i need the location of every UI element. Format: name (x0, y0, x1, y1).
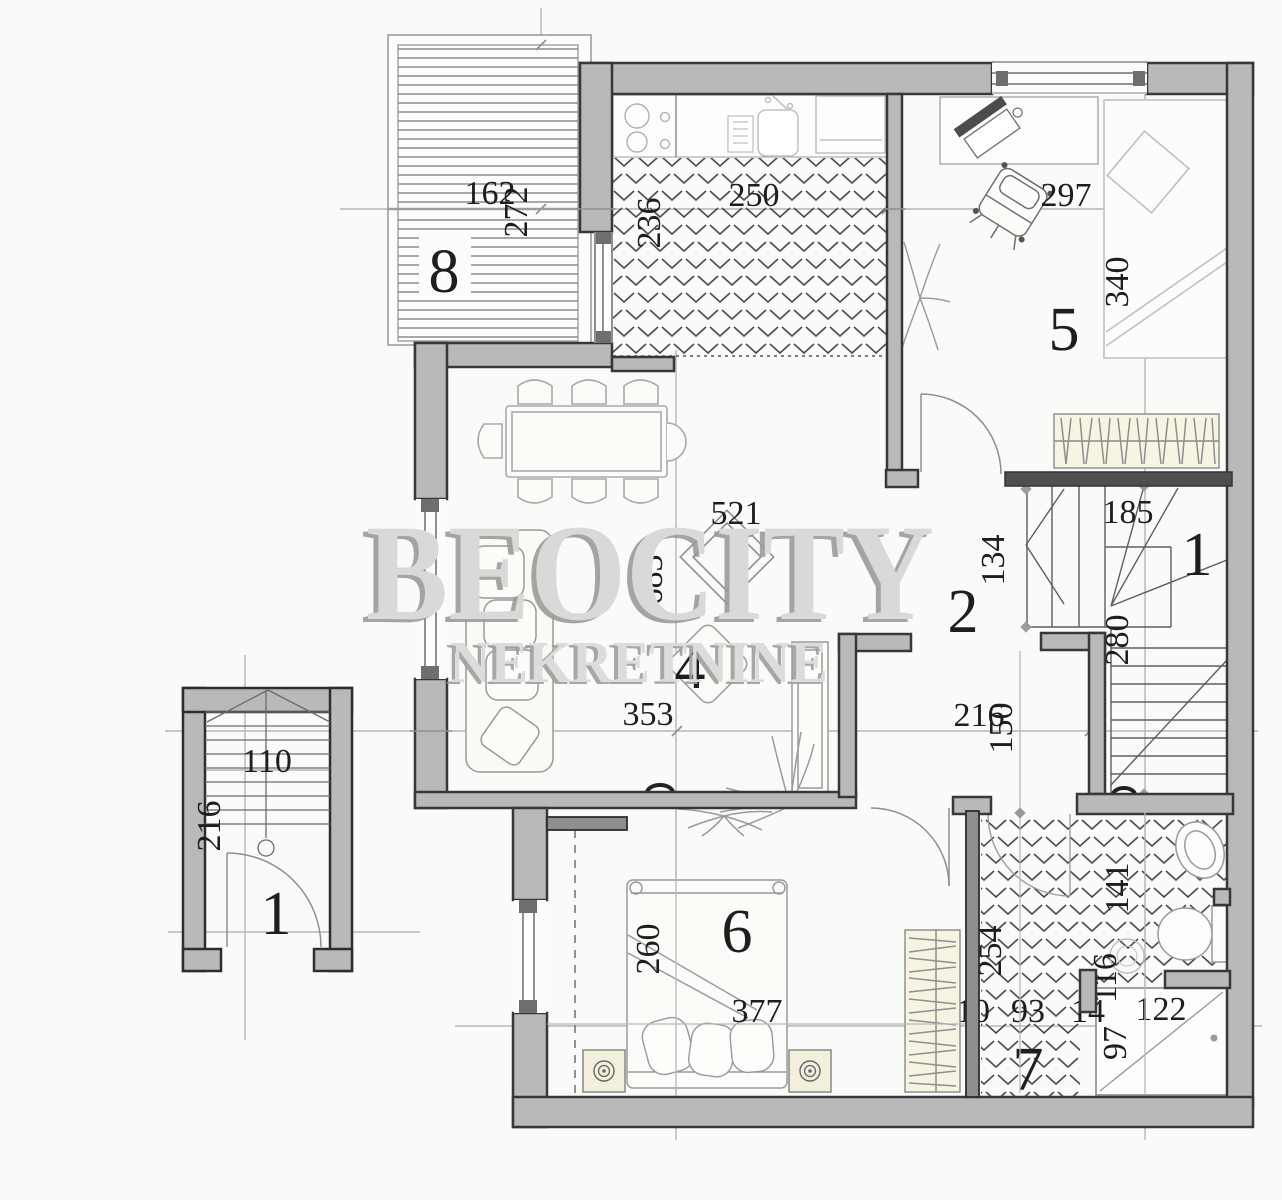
svg-text:1: 1 (1182, 521, 1213, 589)
svg-text:BEOCITY: BEOCITY (366, 496, 934, 649)
svg-text:297: 297 (1041, 177, 1092, 214)
svg-text:141: 141 (1099, 863, 1136, 914)
svg-text:5: 5 (1049, 296, 1080, 364)
svg-text:216: 216 (191, 801, 228, 852)
svg-text:236: 236 (631, 198, 668, 249)
svg-text:150: 150 (983, 703, 1020, 754)
svg-text:122: 122 (1136, 991, 1187, 1028)
svg-text:340: 340 (1099, 257, 1136, 308)
svg-text:110: 110 (242, 743, 292, 780)
svg-text:2: 2 (948, 578, 979, 646)
svg-text:6: 6 (722, 898, 753, 966)
svg-text:8: 8 (429, 238, 460, 306)
svg-text:7: 7 (1013, 1036, 1044, 1104)
svg-text:353: 353 (623, 696, 674, 733)
svg-text:97: 97 (1097, 1026, 1134, 1060)
svg-text:134: 134 (975, 535, 1012, 586)
svg-text:272: 272 (498, 187, 535, 238)
svg-text:185: 185 (1103, 494, 1154, 531)
svg-text:260: 260 (630, 924, 667, 975)
svg-text:250: 250 (729, 177, 780, 214)
svg-text:1: 1 (261, 880, 292, 948)
svg-text:93: 93 (1011, 993, 1045, 1030)
svg-text:NEKRETNINE: NEKRETNINE (450, 629, 828, 695)
